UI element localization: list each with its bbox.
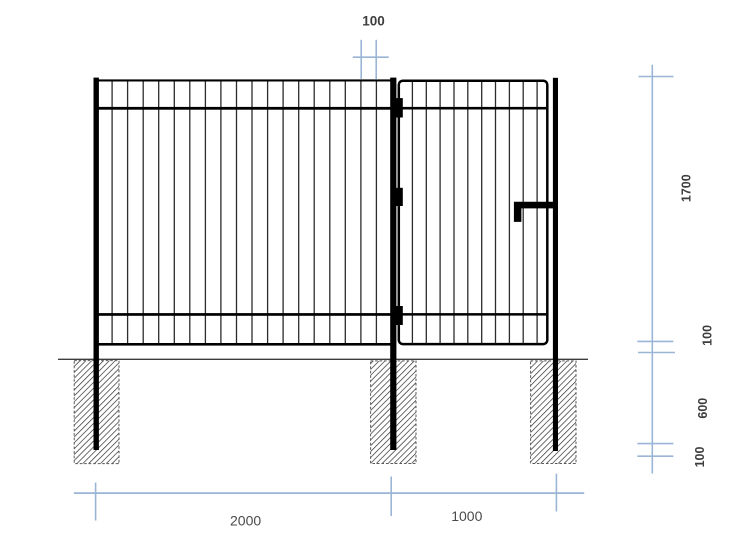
svg-text:1700: 1700	[680, 174, 694, 202]
svg-text:100: 100	[693, 447, 707, 468]
svg-text:600: 600	[696, 398, 710, 419]
svg-text:1000: 1000	[451, 508, 482, 524]
svg-text:100: 100	[701, 325, 715, 346]
svg-text:100: 100	[362, 13, 385, 28]
svg-text:2000: 2000	[230, 513, 261, 529]
